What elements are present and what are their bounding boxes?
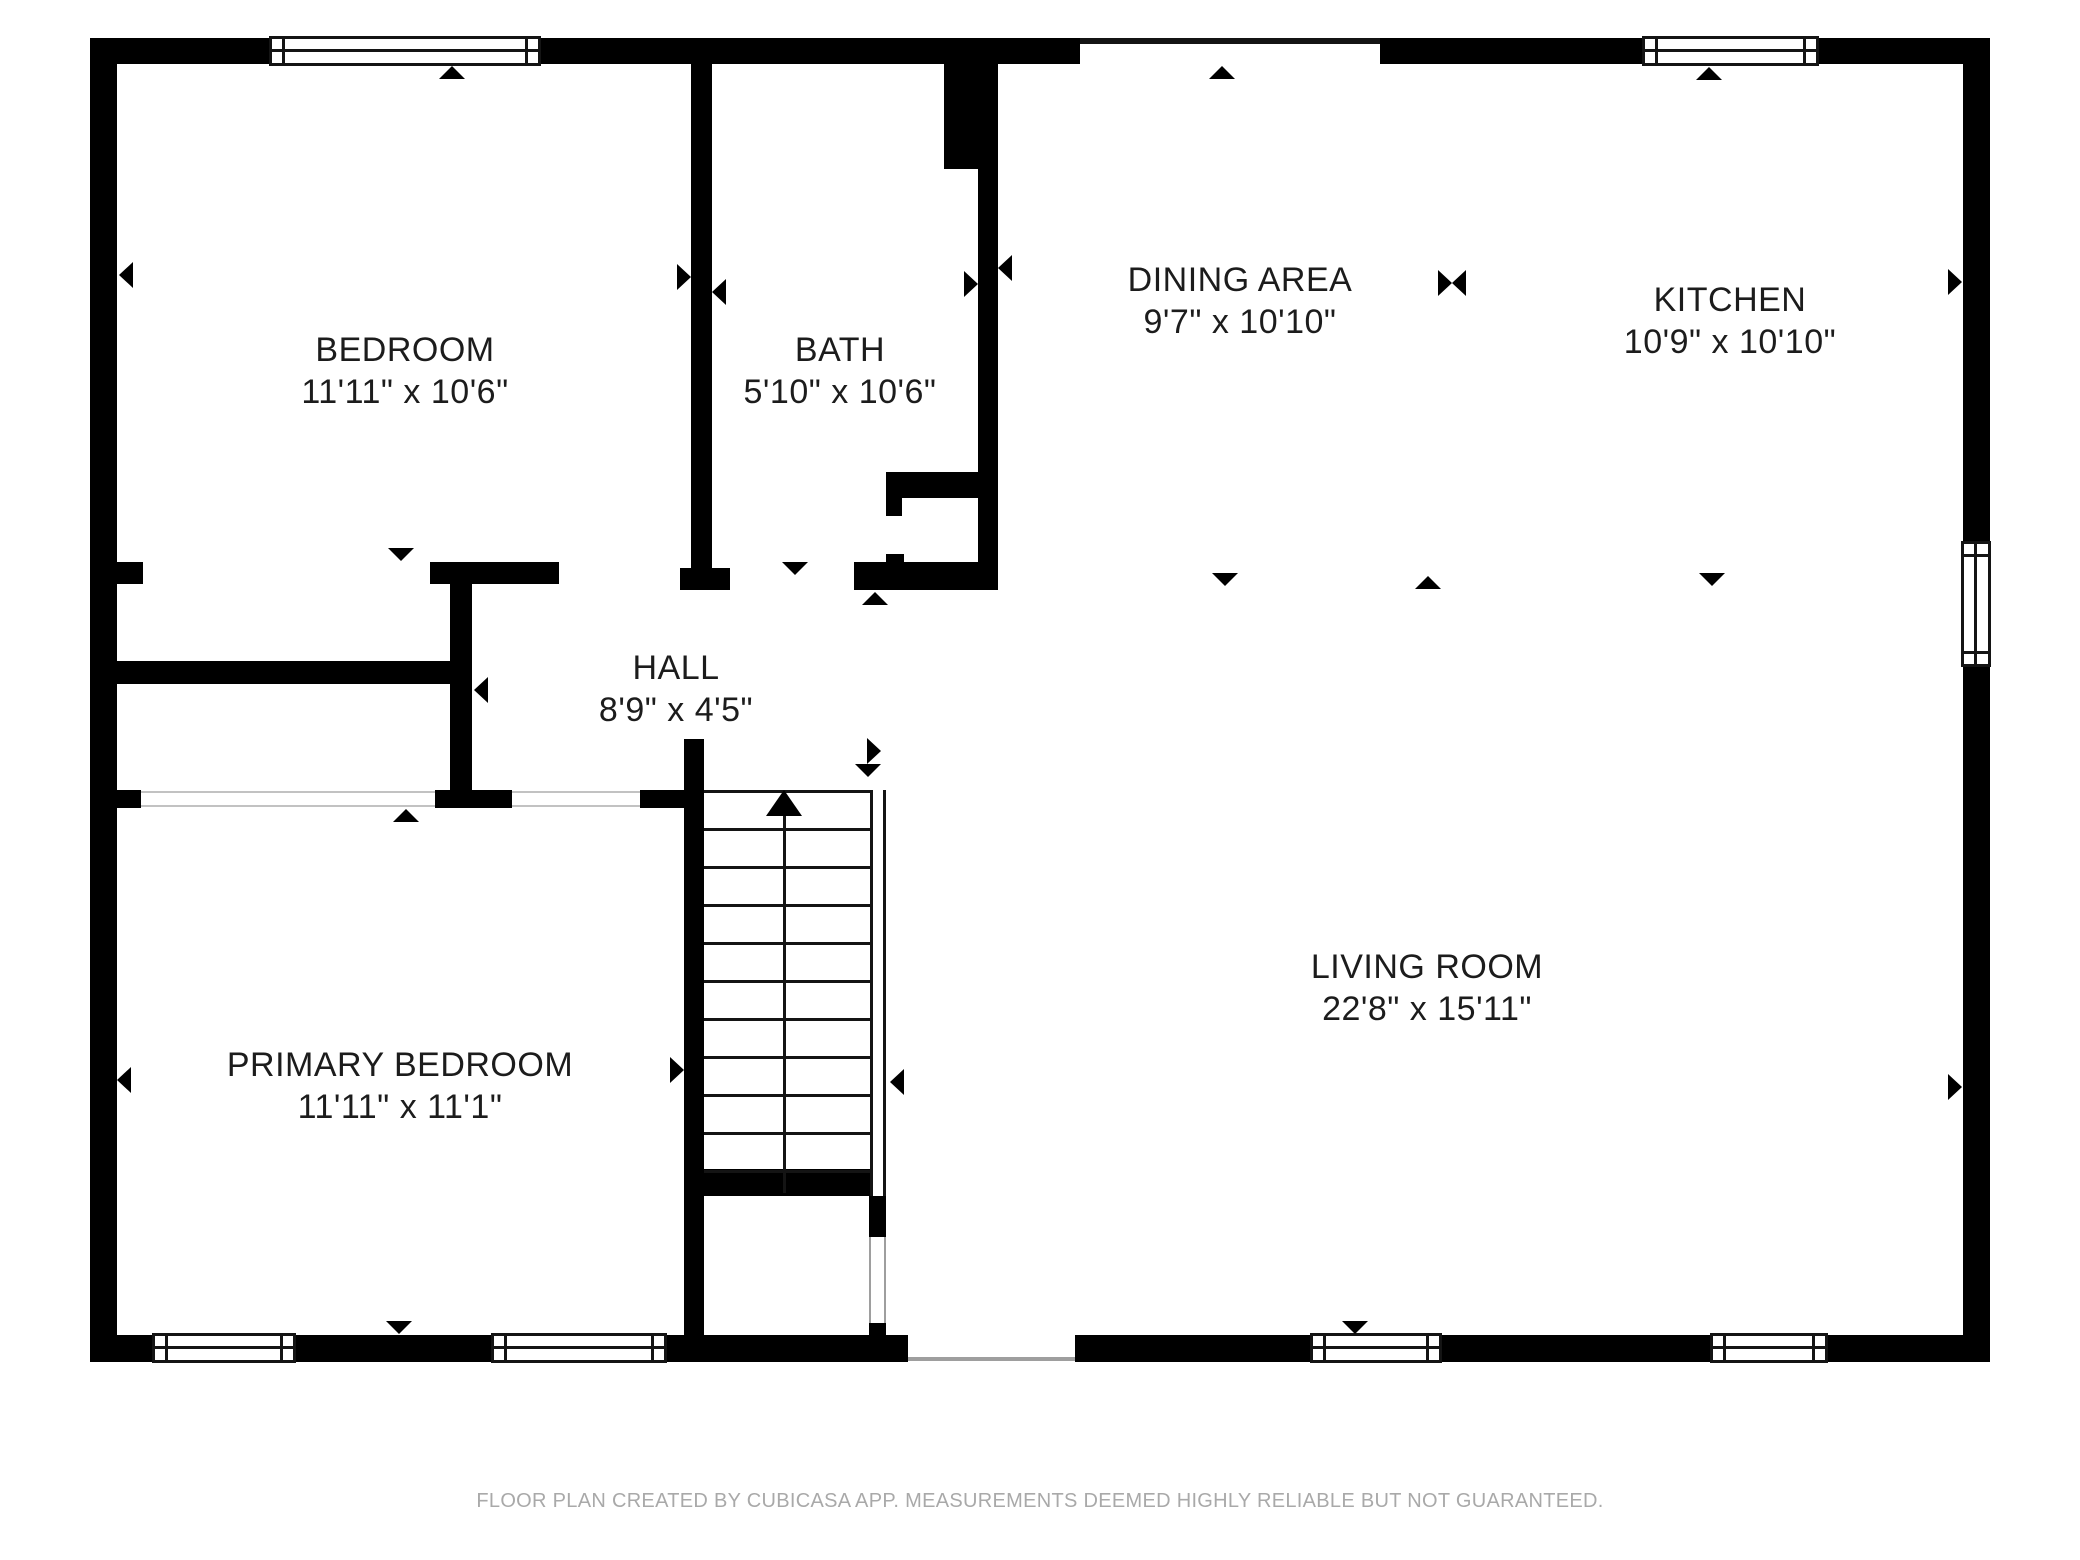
room-label-bath: BATH 5'10" x 10'6" bbox=[744, 329, 937, 413]
primary-bedroom-window-1 bbox=[152, 1333, 296, 1363]
room-label-kitchen: KITCHEN 10'9" x 10'10" bbox=[1624, 279, 1836, 363]
window-midline bbox=[1713, 1346, 1825, 1349]
door-marker-icon bbox=[862, 592, 888, 605]
bedroom-bath-wall-foot bbox=[680, 568, 730, 590]
staircase-rail bbox=[870, 790, 886, 1196]
primary-wall-cap-right bbox=[640, 790, 688, 808]
bath-south-wall-notch bbox=[886, 554, 904, 562]
stair-left-wall bbox=[684, 739, 704, 1362]
window-frame-cap bbox=[1723, 1336, 1726, 1360]
exterior-wall-right-upper bbox=[1963, 38, 1990, 541]
stair-marker-icon bbox=[855, 764, 881, 777]
living-room-window-2 bbox=[1710, 1333, 1828, 1363]
window-marker-icon bbox=[439, 66, 465, 79]
primary-bedroom-window-2 bbox=[491, 1333, 667, 1363]
room-label-bedroom: BEDROOM 11'11" x 10'6" bbox=[301, 329, 508, 413]
window-midline bbox=[1645, 49, 1816, 52]
window-frame-cap bbox=[280, 1336, 283, 1360]
bedroom-bath-wall bbox=[691, 64, 712, 568]
room-divider-marker-icon bbox=[1452, 270, 1466, 296]
room-dimensions: 9'7" x 10'10" bbox=[1128, 301, 1353, 343]
window-frame-cap bbox=[1964, 651, 1988, 654]
wall-marker-icon bbox=[1948, 269, 1962, 295]
dining-opening-top-line bbox=[1080, 38, 1380, 44]
opening-marker-icon bbox=[1209, 66, 1235, 79]
floor-plan: BEDROOM 11'11" x 10'6" BATH 5'10" x 10'6… bbox=[0, 0, 2080, 1560]
exterior-wall-top-3 bbox=[1380, 38, 1642, 64]
closet-stem-wall bbox=[450, 584, 472, 790]
door-marker-icon bbox=[782, 562, 808, 575]
primary-wall-cap-left bbox=[117, 790, 141, 808]
window-midline bbox=[1313, 1346, 1439, 1349]
window-frame-cap bbox=[1655, 39, 1658, 63]
room-dimensions: 11'11" x 10'6" bbox=[301, 371, 508, 413]
window-frame-cap bbox=[1803, 39, 1806, 63]
exterior-wall-right-lower bbox=[1963, 667, 1990, 1362]
room-label-primary: PRIMARY BEDROOM 11'11" x 11'1" bbox=[227, 1044, 573, 1128]
kitchen-window bbox=[1642, 36, 1819, 66]
footer-disclaimer: FLOOR PLAN CREATED BY CUBICASA APP. MEAS… bbox=[0, 1490, 2080, 1513]
room-divider-marker-icon bbox=[1438, 270, 1452, 296]
closet-divider-wall bbox=[117, 661, 454, 684]
room-name: BEDROOM bbox=[301, 329, 508, 371]
staircase-up-arrow-icon bbox=[766, 790, 802, 816]
room-name: KITCHEN bbox=[1624, 279, 1836, 321]
patio-opening-line bbox=[908, 1357, 1075, 1361]
room-name: LIVING ROOM bbox=[1311, 946, 1543, 988]
landing-door-cap-top bbox=[869, 1196, 886, 1237]
window-frame-cap bbox=[282, 39, 285, 63]
wall-marker-icon bbox=[670, 1057, 684, 1083]
bedroom-window bbox=[269, 36, 541, 66]
room-dimensions: 11'11" x 11'1" bbox=[227, 1086, 573, 1128]
exterior-wall-bottom-4 bbox=[1075, 1335, 1310, 1362]
wall-marker-icon bbox=[1948, 1074, 1962, 1100]
wall-marker-icon bbox=[712, 279, 726, 305]
window-marker-icon bbox=[1696, 67, 1722, 80]
window-midline bbox=[272, 49, 538, 52]
room-label-hall: HALL 8'9" x 4'5" bbox=[599, 647, 753, 731]
window-marker-icon bbox=[1342, 1321, 1368, 1334]
landing-door-cap-bottom bbox=[869, 1323, 886, 1338]
flow-marker-icon bbox=[1415, 576, 1441, 589]
room-dimensions: 8'9" x 4'5" bbox=[599, 689, 753, 731]
wall-marker-icon bbox=[119, 262, 133, 288]
window-frame-cap bbox=[1426, 1336, 1429, 1360]
room-name: HALL bbox=[599, 647, 753, 689]
window-frame-cap bbox=[1323, 1336, 1326, 1360]
staircase-treads bbox=[704, 790, 870, 1196]
exterior-wall-bottom-2 bbox=[296, 1335, 491, 1362]
window-frame-cap bbox=[504, 1336, 507, 1360]
room-name: PRIMARY BEDROOM bbox=[227, 1044, 573, 1086]
wall-marker-icon bbox=[677, 264, 691, 290]
kitchen-side-window bbox=[1961, 541, 1991, 667]
window-midline bbox=[1974, 544, 1977, 664]
window-frame-cap bbox=[165, 1336, 168, 1360]
bath-dining-wall-notch bbox=[944, 54, 998, 169]
bedroom-south-wall-bar bbox=[430, 562, 559, 584]
window-frame-cap bbox=[525, 39, 528, 63]
exterior-wall-left bbox=[90, 38, 117, 1362]
landing-door-opening bbox=[869, 1237, 886, 1323]
room-dimensions: 22'8" x 15'11" bbox=[1311, 988, 1543, 1030]
window-frame-cap bbox=[651, 1336, 654, 1360]
bath-niche-leg bbox=[886, 498, 902, 516]
bedroom-south-wall-stub bbox=[117, 562, 143, 584]
window-midline bbox=[155, 1346, 293, 1349]
flow-marker-icon bbox=[1699, 573, 1725, 586]
room-name: BATH bbox=[744, 329, 937, 371]
primary-wall-foot bbox=[435, 790, 512, 808]
wall-marker-icon bbox=[117, 1067, 131, 1093]
room-label-dining: DINING AREA 9'7" x 10'10" bbox=[1128, 259, 1353, 343]
window-frame-cap bbox=[1964, 554, 1988, 557]
room-dimensions: 5'10" x 10'6" bbox=[744, 371, 937, 413]
wall-marker-icon bbox=[890, 1069, 904, 1095]
room-label-living: LIVING ROOM 22'8" x 15'11" bbox=[1311, 946, 1543, 1030]
room-dimensions: 10'9" x 10'10" bbox=[1624, 321, 1836, 363]
window-frame-cap bbox=[1812, 1336, 1815, 1360]
bath-south-wall bbox=[854, 562, 998, 590]
wall-marker-icon bbox=[964, 271, 978, 297]
primary-door-opening-2 bbox=[512, 791, 640, 807]
exterior-wall-top-2 bbox=[541, 38, 1080, 64]
door-marker-icon bbox=[393, 809, 419, 822]
bath-niche-shelf bbox=[886, 472, 980, 498]
room-name: DINING AREA bbox=[1128, 259, 1353, 301]
flow-marker-icon bbox=[1212, 573, 1238, 586]
wall-marker-icon bbox=[998, 255, 1012, 281]
exterior-wall-bottom-5 bbox=[1442, 1335, 1710, 1362]
window-marker-icon bbox=[386, 1321, 412, 1334]
living-room-window-1 bbox=[1310, 1333, 1442, 1363]
staircase-center-line bbox=[783, 793, 786, 1193]
door-marker-icon bbox=[388, 548, 414, 561]
primary-door-opening-1 bbox=[141, 791, 435, 807]
exterior-wall-bottom-6 bbox=[1828, 1335, 1990, 1362]
window-midline bbox=[494, 1346, 664, 1349]
hall-marker-icon bbox=[867, 738, 881, 764]
exterior-wall-bottom-1 bbox=[90, 1335, 152, 1362]
wall-marker-icon bbox=[474, 677, 488, 703]
